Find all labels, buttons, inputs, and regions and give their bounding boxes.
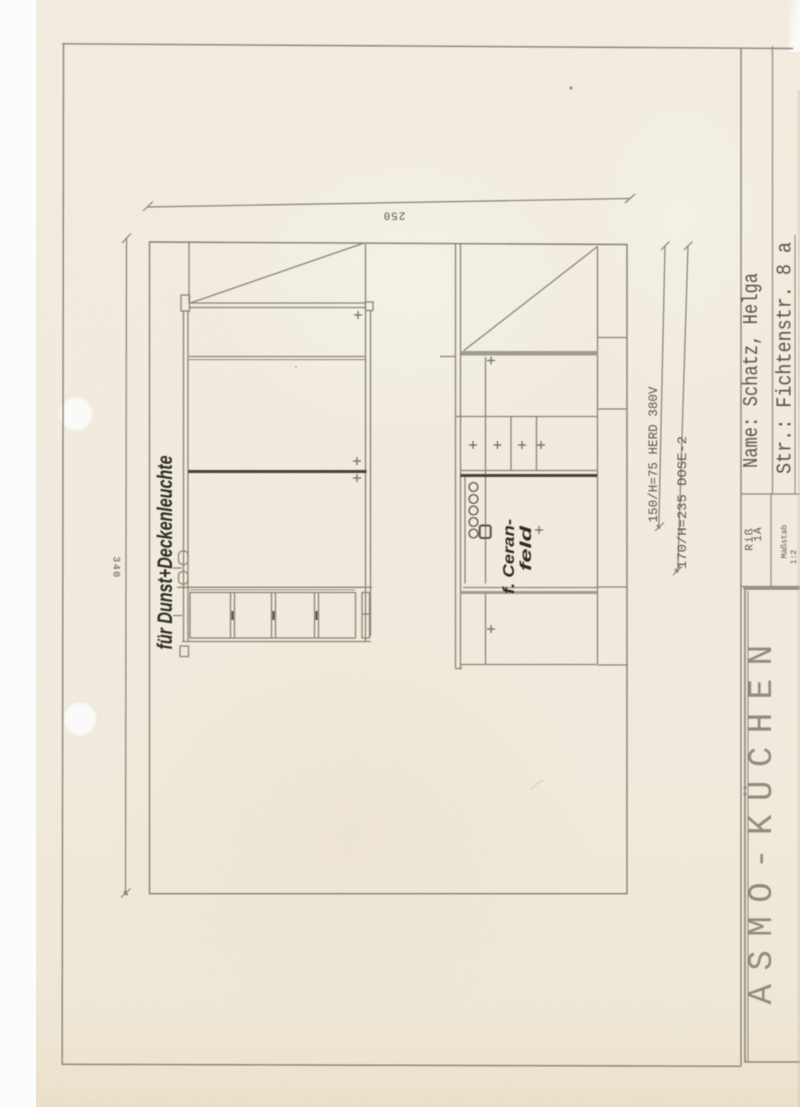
svg-text:340: 340 (110, 556, 121, 579)
svg-text:250: 250 (383, 209, 406, 221)
svg-text:für Dunst+Deckenleuchte: für Dunst+Deckenleuchte (154, 455, 177, 649)
svg-text:feld: feld (518, 524, 535, 571)
svg-text:170/H=235 DOSE-2: 170/H=235 DOSE-2 (676, 436, 690, 569)
svg-text:150/H=75 HERD 380V: 150/H=75 HERD 380V (647, 386, 661, 522)
svg-text:f. Ceran-: f. Ceran- (501, 519, 518, 594)
svg-text:Name: Schatz, Helga: Name: Schatz, Helga (741, 273, 764, 468)
svg-text:1:2: 1:2 (790, 550, 799, 565)
svg-text:Maßstab: Maßstab (781, 525, 790, 559)
svg-text:ASMO-KÜCHEN: ASMO-KÜCHEN (744, 632, 782, 1005)
svg-text:Str.: Fichtenstr. 8 a: Str.: Fichtenstr. 8 a (775, 242, 798, 474)
svg-text:1A: 1A (753, 526, 765, 541)
